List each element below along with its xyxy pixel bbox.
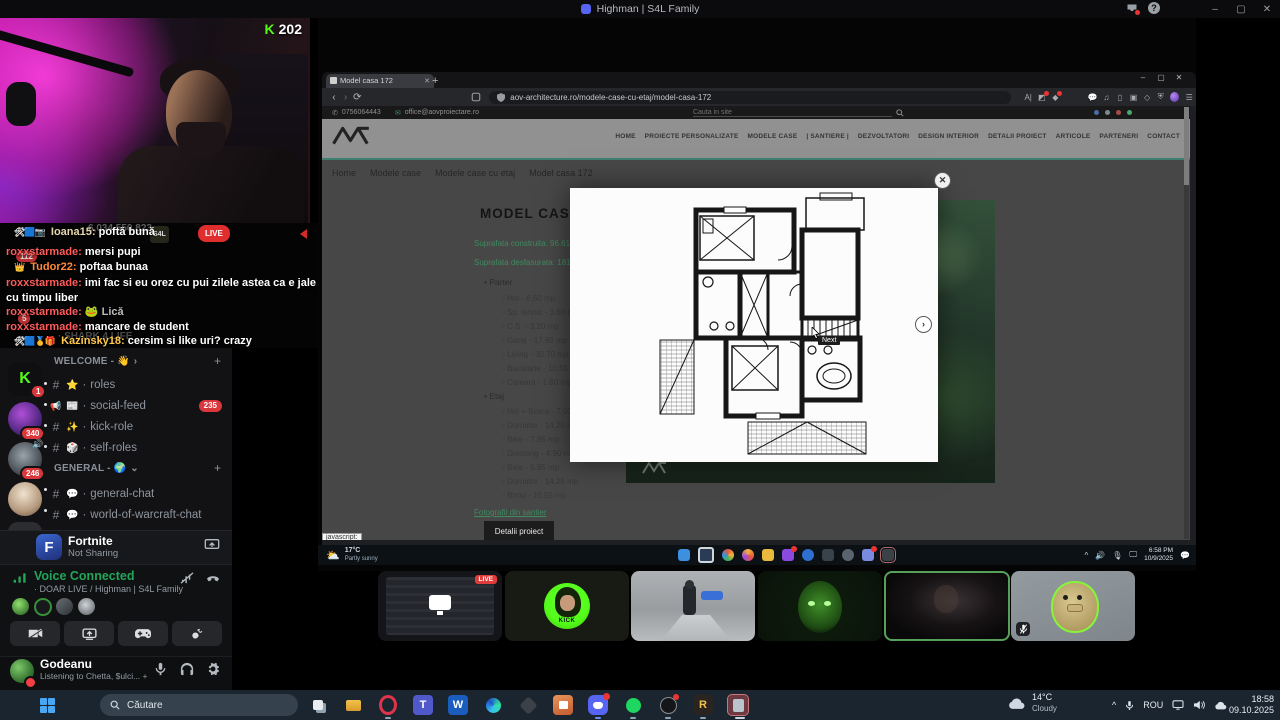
chat-text: cersim si like uri? crazy [128, 335, 252, 347]
nav-link[interactable]: CONTACT [1147, 133, 1180, 140]
obs-icon[interactable] [658, 695, 678, 715]
activities-button[interactable] [118, 621, 168, 646]
stream-to-channel-icon[interactable] [204, 538, 220, 552]
chat-badges: 🛠🟦🥇🎁 [14, 336, 55, 346]
shared-app-icon[interactable] [822, 549, 834, 561]
chat-message: 👑 Tudor22: poftaa bunaa [14, 260, 334, 275]
channel-name: general-chat [90, 488, 154, 500]
room-item: ◦ Baie - 7.85 mp [502, 435, 559, 444]
channel-hash-icon: # [50, 441, 62, 455]
new-tab-button[interactable]: + [432, 75, 438, 87]
browser-close[interactable]: ✕ [1172, 73, 1186, 82]
snapshot-icon[interactable]: ▣ [1127, 93, 1141, 102]
add-channel-button[interactable]: + [214, 354, 221, 368]
url-bar[interactable]: aov-architecture.ro/modele-case-cu-etaj/… [489, 91, 1011, 104]
shared-tray: ^ 🔊 🎙 🖵 6:58 PM 10/9/2025 💬 [1085, 547, 1191, 563]
channel-name: self-roles [90, 442, 137, 454]
file-explorer-icon[interactable] [343, 695, 363, 715]
server-icon-avatar[interactable]: 🔊 246 [8, 442, 42, 476]
shared-date: 10/9/2025 [1144, 555, 1173, 563]
clock-time: 18:58 [1226, 694, 1274, 705]
room-item: ◦ Garaj - 17.60 mp [502, 336, 567, 345]
screenshare-monitor-icon [429, 595, 451, 610]
taskbar-search[interactable]: Căutare [100, 694, 298, 716]
obs-badge [673, 694, 679, 700]
floorplan-lightbox [570, 188, 938, 462]
shared-speaker-icon[interactable]: 🔊 [1095, 551, 1105, 560]
site-email[interactable]: office@aovproiectare.ro [405, 109, 479, 116]
road-shape [661, 615, 731, 641]
tray-language[interactable]: ROU [1143, 700, 1163, 710]
browser-minimize[interactable]: – [1136, 73, 1150, 82]
room-text: Sp. tehnic - 3.60 mp [507, 308, 579, 317]
extension-icon[interactable]: ◩ [1035, 93, 1049, 102]
sidebar-panel-icon[interactable]: ▯ [1113, 93, 1127, 102]
running-indicator [630, 717, 636, 719]
taskbar-weather[interactable]: 14°C Cloudy [1008, 692, 1057, 714]
chat-badges: 🛠🟦📷 [14, 227, 45, 237]
add-channel-button[interactable]: + [214, 461, 221, 475]
room-text: Birou - 10.55 mp [507, 491, 566, 500]
floor1-label-text: Parter [489, 277, 512, 287]
taskbar-clock[interactable]: 18:58 09.10.2025 [1226, 694, 1274, 716]
youtube-icon[interactable] [1116, 110, 1121, 115]
kick-logo: K [265, 21, 275, 37]
video-tile-kick-avatar[interactable]: KICK [505, 571, 629, 641]
connection-signal-icon [12, 571, 28, 585]
chat-emote: 🐸 [85, 306, 99, 318]
room-item: ◦ Birou - 10.55 mp [502, 491, 566, 500]
discord-taskbar-icon[interactable] [588, 695, 608, 715]
person-silhouette [683, 585, 696, 615]
voice-panel: Voice Connected · DOAR LIVE / Highman | … [0, 564, 232, 657]
word-icon[interactable]: W [448, 695, 468, 715]
extension-badge [1057, 91, 1062, 96]
video-tile-duck-avatar[interactable] [1011, 571, 1135, 641]
nav-link[interactable]: DEZVOLTATORI [858, 133, 909, 140]
running-indicator [385, 717, 391, 719]
photos-link[interactable]: Fotografii din santier [474, 508, 546, 517]
dot-separator: · [82, 442, 86, 454]
browser-window-controls: – ▢ ✕ [1136, 73, 1186, 82]
spotify-glyph [626, 698, 641, 713]
back-button[interactable]: ‹ [328, 92, 340, 103]
channel-emoji: 📰 [66, 401, 78, 412]
edge-glyph [486, 698, 501, 713]
channel-name: roles [90, 379, 115, 391]
room-item: ◦ Dormitor - 14.20 mp [502, 421, 578, 430]
soundboard-button[interactable] [172, 621, 222, 646]
browser-tabstrip [322, 72, 1196, 88]
dnd-status-icon [24, 676, 37, 689]
folder-glyph [346, 700, 361, 711]
viewer-counter: K 202 [265, 20, 302, 38]
channel-emoji: 🎲 [66, 443, 78, 454]
shared-app-icon[interactable] [802, 549, 814, 561]
category-label: WELCOME - 👋 [54, 356, 130, 367]
search-placeholder: Căutare [127, 700, 163, 711]
breadcrumb-link[interactable]: Home [332, 168, 356, 178]
social-icons[interactable] [1094, 110, 1132, 115]
car-shape [701, 591, 723, 600]
voice-avatar[interactable] [78, 598, 95, 615]
shared-taskbar: ⛅ 17°C Partly sunny ^ 🔊 🎙 🖵 6:58 PM 10/9… [318, 545, 1196, 565]
shared-time: 6:58 PM [1144, 547, 1173, 555]
kick-avatar-face [560, 595, 575, 611]
channel-name: world-of-warcraft-chat [90, 509, 201, 521]
sidebar-item-social-feed[interactable]: 📢 📰 · social-feed 235 [50, 397, 230, 415]
server-badge: 246 [20, 466, 45, 481]
badge-dot [871, 546, 877, 552]
category-general[interactable]: GENERAL - 🌍 ⌄ [54, 463, 139, 474]
bookmark-icon[interactable] [471, 92, 481, 102]
activity-game-name: Fortnite [68, 534, 113, 548]
extension-icon[interactable]: ◆ [1049, 93, 1063, 102]
room-item: ◦ Hol - 6.50 mp [502, 294, 555, 303]
unread-dot [44, 382, 47, 385]
store-icon[interactable] [553, 695, 573, 715]
channel-hash-icon: # [50, 378, 62, 392]
chat-username[interactable]: roxxstarmade: [6, 277, 82, 289]
weather-temp: 14°C [1032, 692, 1057, 703]
tray-display-icon[interactable] [1172, 700, 1184, 710]
site-navbar: HOME PROIECTE PERSONALIZATE MODELE CASE … [322, 119, 1190, 160]
user-name[interactable]: Godeanu [40, 657, 92, 671]
duck-eyes [1063, 595, 1068, 600]
unread-dot [44, 403, 47, 406]
chat-username[interactable]: Kazinsky18: [61, 335, 125, 347]
shared-mic-icon[interactable]: 🎙 [1112, 551, 1122, 560]
start-button[interactable] [40, 698, 55, 713]
chat-text: Lică [102, 306, 124, 318]
activity-status: Not Sharing [68, 548, 118, 559]
room-text: Dormitor - 14.25 mp [507, 477, 578, 486]
aov-logo[interactable] [332, 125, 378, 147]
breadcrumb-link[interactable]: Modele case cu etaj [435, 168, 515, 178]
nav-link[interactable]: MODELE CASE [748, 133, 798, 140]
floor2-label: • Etaj [484, 391, 504, 401]
notification-dot [1135, 10, 1140, 15]
nav-link[interactable]: HOME [615, 133, 635, 140]
weather-condition: Cloudy [1032, 703, 1057, 714]
whatsapp-icon[interactable] [1127, 110, 1132, 115]
channel-emoji: 💬 [66, 510, 78, 521]
channel-name: kick-role [90, 421, 133, 433]
site-nav: HOME PROIECTE PERSONALIZATE MODELE CASE … [615, 133, 1180, 140]
unread-dot [44, 445, 47, 448]
shared-weather-icon[interactable]: ⛅ [326, 549, 340, 562]
mic-arm [0, 28, 134, 78]
shared-active-app-icon[interactable] [882, 549, 894, 561]
chevron-down-icon: ⌄ [130, 463, 139, 474]
reload-button[interactable]: ⟳ [352, 92, 364, 103]
category-welcome[interactable]: WELCOME - 👋 › [54, 356, 137, 367]
video-tile-screenshare[interactable]: LIVE [378, 571, 502, 641]
channel-hash-icon: # [50, 508, 62, 522]
chat-text: poftă bună [99, 226, 155, 238]
shared-notification-icon[interactable]: 💬 [1180, 551, 1190, 560]
phone-icon: ✆ [332, 109, 338, 117]
viewer-count: 202 [279, 21, 302, 37]
channel-hash-icon: # [50, 420, 62, 434]
player-panel-icon[interactable]: ♫ [1100, 93, 1114, 102]
running-indicator [700, 717, 706, 719]
channel-name: social-feed [90, 400, 146, 412]
video-tile-speaking-avatar[interactable] [884, 571, 1010, 641]
sidebar-item-kick-role[interactable]: # ✨ · kick-role [50, 418, 230, 436]
sidebar-item-self-roles[interactable]: # 🎲 · self-roles [50, 439, 230, 457]
camera-button[interactable] [10, 621, 60, 646]
unread-dot [44, 424, 47, 427]
shared-app-icon[interactable] [722, 549, 734, 561]
microphone [6, 82, 36, 126]
voice-avatar[interactable] [56, 598, 73, 615]
room-text: C.S. - 3.20 mp [507, 322, 559, 331]
video-tile-photo-avatar[interactable] [631, 571, 755, 641]
chat-message: 🛠🟦🥇🎁 Kazinsky18: cersim si like uri? cra… [14, 334, 334, 349]
active-app-icon[interactable] [728, 695, 748, 715]
site-phone[interactable]: 0756064443 [342, 109, 381, 116]
screenshare-monitor-stand [437, 611, 443, 615]
shared-app-icon[interactable] [698, 547, 714, 563]
sidebar-item-roles[interactable]: # ⭐ · roles [50, 376, 230, 394]
teams-icon[interactable]: T [413, 695, 433, 715]
server-icon-avatar[interactable] [8, 482, 42, 516]
floor-plan-image [570, 188, 938, 462]
area-built[interactable]: Suprafata construita: 96.61 mp [474, 239, 583, 248]
headphones-icon[interactable] [180, 662, 194, 676]
disconnect-icon[interactable] [206, 572, 220, 584]
discord-badge [603, 693, 610, 700]
search-icon[interactable] [896, 109, 904, 117]
dim-face [934, 585, 958, 613]
shared-taskbar-icons [678, 547, 894, 563]
chat-badges: 👑 [14, 262, 24, 272]
shared-discord-icon[interactable] [862, 549, 874, 561]
profile-avatar-icon[interactable] [1170, 92, 1179, 102]
page-scrollbar-thumb[interactable] [1184, 107, 1189, 185]
chat-message: roxxstarmade: 🐸 Lică [6, 305, 326, 320]
opera-icon[interactable] [378, 695, 398, 715]
noise-suppression-icon[interactable] [180, 572, 194, 584]
voice-avatar[interactable] [12, 598, 29, 615]
shared-condition: Partly sunny [345, 555, 378, 563]
category-label: GENERAL - 🌍 [54, 463, 126, 474]
lightbox-next-button[interactable]: › [915, 316, 932, 333]
dot-separator: · [82, 421, 86, 433]
dot-separator: · [82, 379, 86, 391]
spotify-icon[interactable] [623, 695, 643, 715]
nav-link[interactable]: PROIECTE PERSONALIZATE [645, 133, 739, 140]
minimize-button[interactable]: – [1202, 4, 1228, 15]
shared-tray-chevron[interactable]: ^ [1085, 551, 1089, 560]
forward-button[interactable]: › [340, 92, 352, 103]
nav-link[interactable]: ARTICOLE [1056, 133, 1091, 140]
menu-icon[interactable]: ☰ [1182, 93, 1196, 102]
discord-titlebar: Highman | S4L Family ? – ▢ ✕ [0, 0, 1280, 18]
webcam-video: K 202 [0, 18, 310, 223]
room-item: ◦ Sp. tehnic - 3.60 mp [502, 308, 579, 317]
email-icon: ✉ [395, 109, 401, 117]
channel-emoji: ⭐ [66, 380, 78, 391]
server-icon-kick[interactable]: K 1 [8, 362, 42, 396]
tray-chevron[interactable]: ^ [1112, 700, 1116, 710]
shared-discord-icon[interactable] [782, 549, 794, 561]
chat-panel-icon[interactable]: 💬 [1086, 93, 1100, 102]
green-eyes [808, 601, 815, 606]
channel-announce-icon: 📢 [50, 401, 62, 412]
chat-username[interactable]: Tudor22: [30, 261, 76, 273]
gear-icon[interactable] [206, 662, 220, 676]
chat-message: roxxstarmade: imi fac si eu orez cu pui … [6, 276, 326, 306]
shared-display-icon[interactable]: 🖵 [1129, 550, 1137, 560]
nav-link[interactable]: PARTENERI [1099, 133, 1138, 140]
chat-username[interactable]: roxxstarmade: [6, 246, 82, 258]
chevron-right-icon: › [134, 356, 138, 367]
status-bar-tooltip: javascript: [322, 533, 362, 540]
floor2-label-text: Etaj [489, 391, 504, 401]
site-topbar: ✆ 0756064443 ✉ office@aovproiectare.ro C… [322, 106, 1190, 119]
mic-icon[interactable] [154, 662, 167, 676]
badge-dot [791, 546, 797, 552]
window-title: Highman | S4L Family [597, 3, 700, 15]
duck-beak [1067, 604, 1083, 612]
room-item: ◦ Camara - 1.80 mp [502, 378, 572, 387]
facebook-icon[interactable] [1094, 110, 1099, 115]
aov-watermark [642, 461, 672, 475]
room-text: Hol - 6.50 mp [507, 294, 555, 303]
chat-text: poftaa bunaa [80, 261, 148, 273]
muted-mic-icon [1016, 622, 1030, 636]
mention-badge: 235 [199, 400, 222, 412]
easy-setup-icon[interactable]: ◇ [1140, 93, 1154, 102]
browser-tab[interactable]: Model casa 172 ✕ [326, 74, 434, 89]
room-text: Baie - 7.85 mp [507, 435, 559, 444]
task-view-icon[interactable] [308, 695, 328, 715]
shared-app-icon[interactable] [742, 549, 754, 561]
user-activity: Listening to Chetta, $ulci... +1 [40, 671, 148, 681]
sidebar-item-general-chat[interactable]: # 💬 · general-chat [50, 485, 230, 503]
breadcrumb-link[interactable]: Modele case [370, 168, 421, 178]
task-view-glyph [313, 700, 323, 710]
details-button[interactable]: Detalii proiect [484, 521, 554, 540]
shared-temp: 17°C [345, 547, 378, 555]
titlebar-center: Highman | S4L Family [581, 3, 700, 15]
voice-avatar[interactable] [34, 598, 52, 616]
nvidia-app-icon[interactable] [518, 695, 538, 715]
tray-mic-icon[interactable] [1125, 700, 1134, 711]
server-icon-avatar[interactable]: 340 [8, 402, 42, 436]
tab-title: Model casa 172 [340, 76, 421, 85]
next-tooltip: Next [818, 336, 840, 345]
running-indicator [665, 717, 671, 719]
shared-app-icon[interactable] [842, 549, 854, 561]
fortnite-letter: F [44, 539, 53, 556]
channel-hash-icon: # [50, 487, 62, 501]
inbox-icon[interactable] [1126, 2, 1138, 14]
bag-glyph [559, 701, 568, 709]
word-letter: W [453, 699, 463, 711]
close-button[interactable]: ✕ [1254, 4, 1280, 15]
lightbox-close-button[interactable]: ✕ [934, 172, 951, 189]
url-text: aov-architecture.ro/modele-case-cu-etaj/… [510, 93, 711, 102]
tray-volume-icon[interactable] [1193, 700, 1205, 710]
chat-message: roxxstarmade: mersi pupi [6, 245, 326, 260]
window-controls: – ▢ ✕ [1202, 0, 1280, 18]
website-page: ✆ 0756064443 ✉ office@aovproiectare.ro C… [322, 106, 1190, 540]
shared-clock[interactable]: 6:58 PM 10/9/2025 [1144, 547, 1173, 563]
tab-close-icon[interactable]: ✕ [424, 77, 430, 85]
chat-username[interactable]: Ioana15: [51, 226, 96, 238]
live-badge: LIVE [475, 575, 497, 584]
fortnite-icon: F [36, 534, 62, 560]
room-item: ◦ Dressing - 4.90 mp [502, 449, 575, 458]
chat-text: mersi pupi [85, 246, 141, 258]
browser-maximize[interactable]: ▢ [1154, 73, 1168, 82]
translate-icon[interactable]: A| [1021, 93, 1035, 102]
room-text: Dormitor - 14.20 mp [507, 421, 578, 430]
mouse-cursor [811, 327, 820, 339]
discord-glyph [593, 702, 603, 709]
voice-status: Voice Connected [34, 569, 134, 583]
chat-overlay: 6,034,550,823 S4L LIVE 112 5 🛠🟦📷 Ioana15… [0, 223, 330, 348]
site-security-icon [497, 93, 505, 102]
cloud-icon [1008, 697, 1026, 710]
nav-link[interactable]: DETALII PROIECT [988, 133, 1047, 140]
help-icon[interactable]: ? [1148, 2, 1160, 14]
sidebar-item-world-of-warcraft-chat[interactable]: # 💬 · world-of-warcraft-chat [50, 506, 230, 524]
vpn-shield-icon[interactable]: ⛨ [1154, 92, 1168, 102]
kick-letter: K [19, 370, 31, 388]
breadcrumb-current: Model casa 172 [529, 168, 593, 178]
server-icon [581, 4, 591, 14]
shared-folder-icon[interactable] [762, 549, 774, 561]
voice-actions [10, 621, 222, 646]
room-item: ◦ Baie - 5.85 mp [502, 463, 559, 472]
screenshare-button[interactable] [64, 621, 114, 646]
titlebar-icons: ? [1126, 2, 1160, 14]
nav-link[interactable]: DESIGN INTERIOR [918, 133, 979, 140]
maximize-button[interactable]: ▢ [1228, 4, 1254, 15]
clock-date: 09.10.2025 [1226, 705, 1274, 716]
kick-avatar-text: KICK [505, 618, 629, 624]
shared-start-icon[interactable] [678, 549, 690, 561]
voice-channel-name[interactable]: · DOAR LIVE / Highman | S4L Family [34, 584, 224, 594]
browser-toolbar: ‹ › ⟳ aov-architecture.ro/modele-case-cu… [322, 88, 1196, 106]
twitter-icon[interactable] [1105, 110, 1110, 115]
chat-message: 🛠🟦📷 Ioana15: poftă bună [14, 225, 334, 240]
site-search-input[interactable]: Cauta in site [693, 109, 892, 117]
reaper-letter: R [699, 699, 707, 711]
chat-username[interactable]: roxxstarmade: [6, 306, 82, 318]
room-text: Dressing - 4.90 mp [507, 449, 575, 458]
server-badge: 1 [30, 384, 46, 399]
room-text: Garaj - 17.60 mp [507, 336, 567, 345]
running-indicator [595, 717, 601, 719]
unread-dot [44, 488, 47, 491]
tab-favicon [330, 77, 337, 84]
voice-emoji: 🔊 [32, 439, 43, 450]
edge-icon[interactable] [483, 695, 503, 715]
room-item: ◦ Living - 30.70 mp [502, 350, 568, 359]
search-icon [110, 700, 120, 710]
shared-weather[interactable]: 17°C Partly sunny [345, 547, 378, 563]
video-tile-green-avatar[interactable] [758, 571, 882, 641]
room-item: ◦ Dormitor - 14.25 mp [502, 477, 578, 486]
reaper-icon[interactable]: R [693, 695, 713, 715]
nav-link[interactable]: | SANTIERE | [806, 133, 849, 140]
teams-letter: T [420, 699, 427, 711]
